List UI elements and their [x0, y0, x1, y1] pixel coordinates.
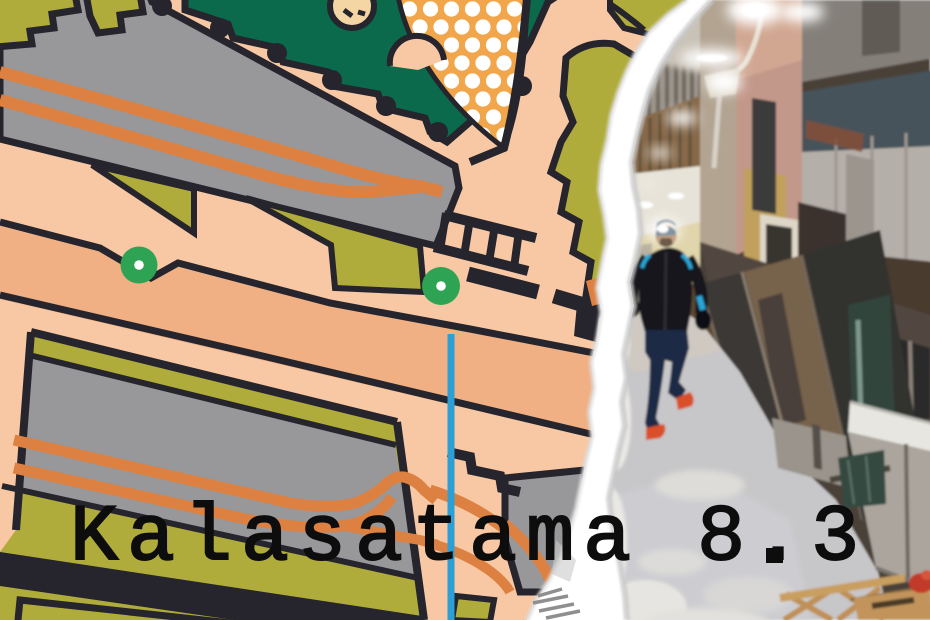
svg-text:Kalasatama 8.3: Kalasatama 8.3 — [70, 493, 868, 584]
